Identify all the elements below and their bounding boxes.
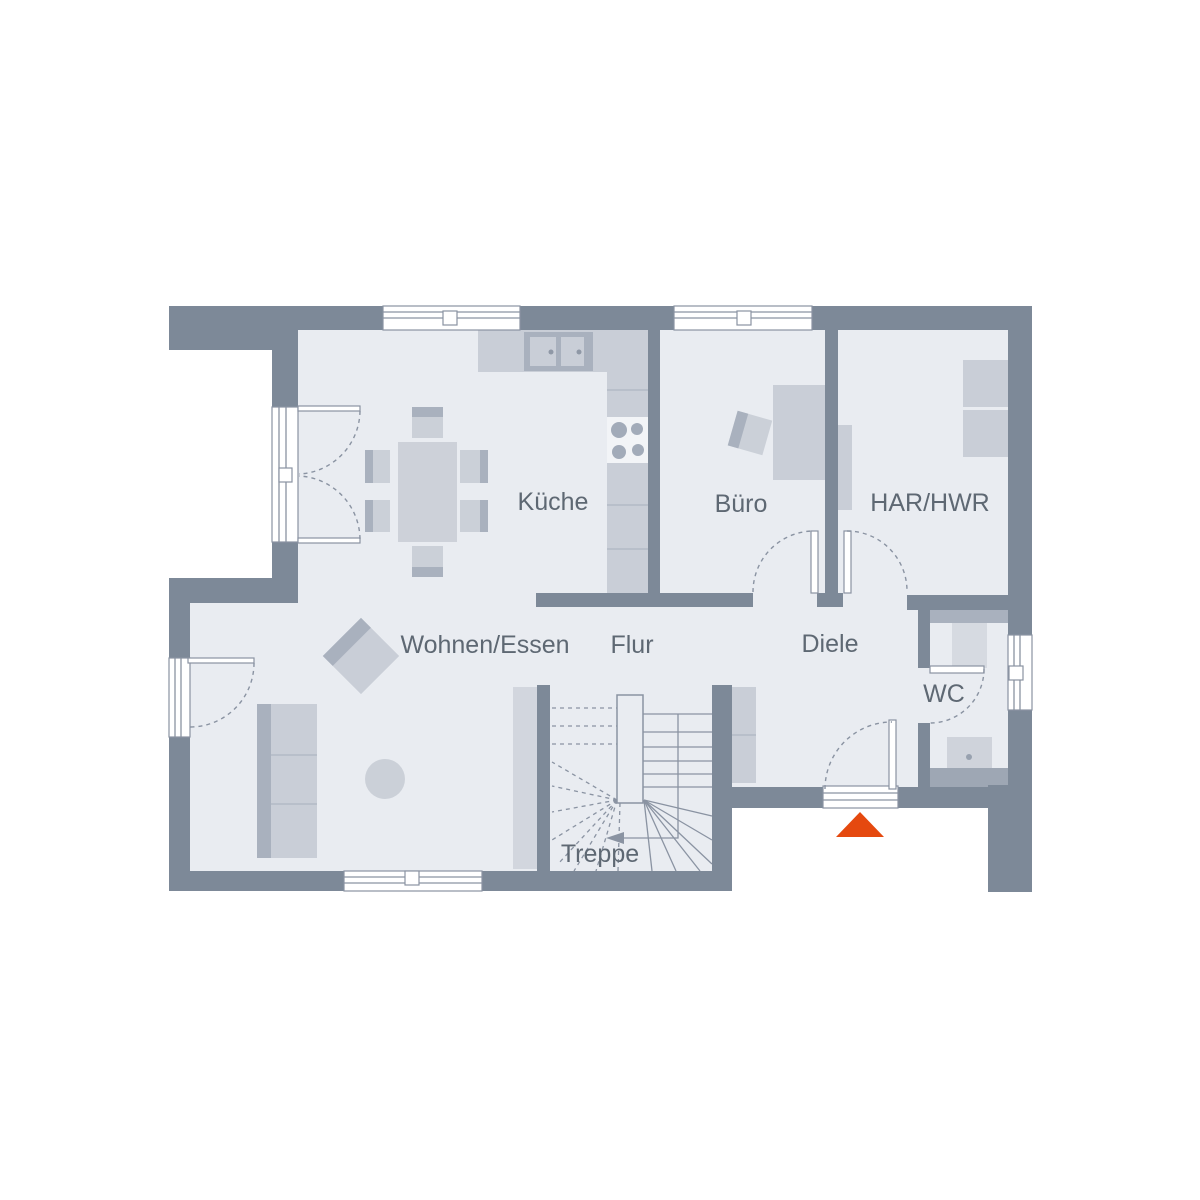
wall-west-upper-a [272, 349, 298, 407]
window-handle-icon [443, 311, 457, 325]
door-leaf [298, 406, 360, 411]
wall-office-utility [825, 328, 838, 593]
wall-door-pier [817, 593, 843, 607]
wall-stair-east [712, 685, 732, 890]
dining-chair-back [412, 407, 443, 417]
wall-northwest-corner [169, 306, 298, 350]
wall-stair-west [537, 685, 550, 871]
wall-kitchen-office [648, 328, 660, 600]
wall-south-entrance-left [722, 787, 823, 808]
floor-plan-page: Küche Büro HAR/HWR Wohnen/Essen Flur Die… [0, 0, 1200, 1200]
room-label-har-hwr: HAR/HWR [870, 489, 989, 517]
utility-appliance [963, 410, 1008, 457]
utility-appliance [963, 360, 1008, 407]
side-table [365, 759, 405, 799]
dining-table [398, 442, 457, 542]
stair-newel [617, 695, 643, 803]
dining-chair-back [480, 450, 488, 483]
wall-west-upper-b [272, 542, 298, 580]
burner-icon [631, 423, 643, 435]
room-label-wohnen-essen: Wohnen/Essen [400, 631, 569, 659]
utility-cabinet [838, 425, 852, 510]
wc-ledge [930, 768, 1010, 787]
dining-chair-back [365, 500, 373, 532]
wc-toilet [947, 737, 992, 768]
sink-drain-icon [549, 350, 554, 355]
room-label-buero: Büro [715, 490, 768, 518]
door-handle-icon [279, 468, 292, 482]
room-label-kueche: Küche [518, 488, 589, 516]
sideboard [513, 687, 537, 869]
wall-wc-west-a [918, 597, 930, 668]
burner-icon [612, 445, 626, 459]
wall-wc-west-b [918, 723, 930, 787]
sink-drain-icon [577, 350, 582, 355]
kitchen-counter-east [607, 372, 648, 594]
door-leaf [188, 658, 254, 663]
dining-chair-back [365, 450, 373, 483]
room-label-treppe: Treppe [561, 840, 639, 868]
burner-icon [632, 444, 644, 456]
room-label-diele: Diele [802, 630, 859, 658]
door-leaf [889, 720, 896, 789]
door-leaf [844, 531, 851, 593]
window-east-wc [1008, 635, 1032, 710]
window-handle-icon [405, 871, 419, 885]
burner-icon [611, 422, 627, 438]
wall-west-lower-b [169, 737, 190, 891]
sofa-back [257, 704, 271, 858]
window-north-office [674, 306, 812, 330]
wall-east [1008, 306, 1032, 808]
dining-chair-back [412, 567, 443, 577]
door-leaf [930, 666, 984, 673]
door-leaf [298, 538, 360, 543]
window-south-living [344, 871, 482, 891]
room-label-wc: WC [923, 680, 965, 708]
window-north-dining [383, 306, 520, 330]
floor-plan-image: Küche Büro HAR/HWR Wohnen/Essen Flur Die… [0, 0, 1200, 1200]
room-label-flur: Flur [610, 631, 653, 659]
dining-chair-back [480, 500, 488, 532]
door-leaf [811, 531, 818, 593]
wall-north [169, 306, 1032, 330]
window-handle-icon [1009, 666, 1023, 680]
wall-hallway-north [536, 593, 753, 607]
cooktop [607, 417, 648, 463]
wc-drain-icon [966, 754, 972, 760]
wc-sink [952, 623, 987, 668]
office-desk [773, 385, 825, 480]
wall-south-right [898, 787, 1010, 808]
sofa [271, 704, 317, 858]
window-handle-icon [737, 311, 751, 325]
wall-west-step [169, 578, 298, 603]
